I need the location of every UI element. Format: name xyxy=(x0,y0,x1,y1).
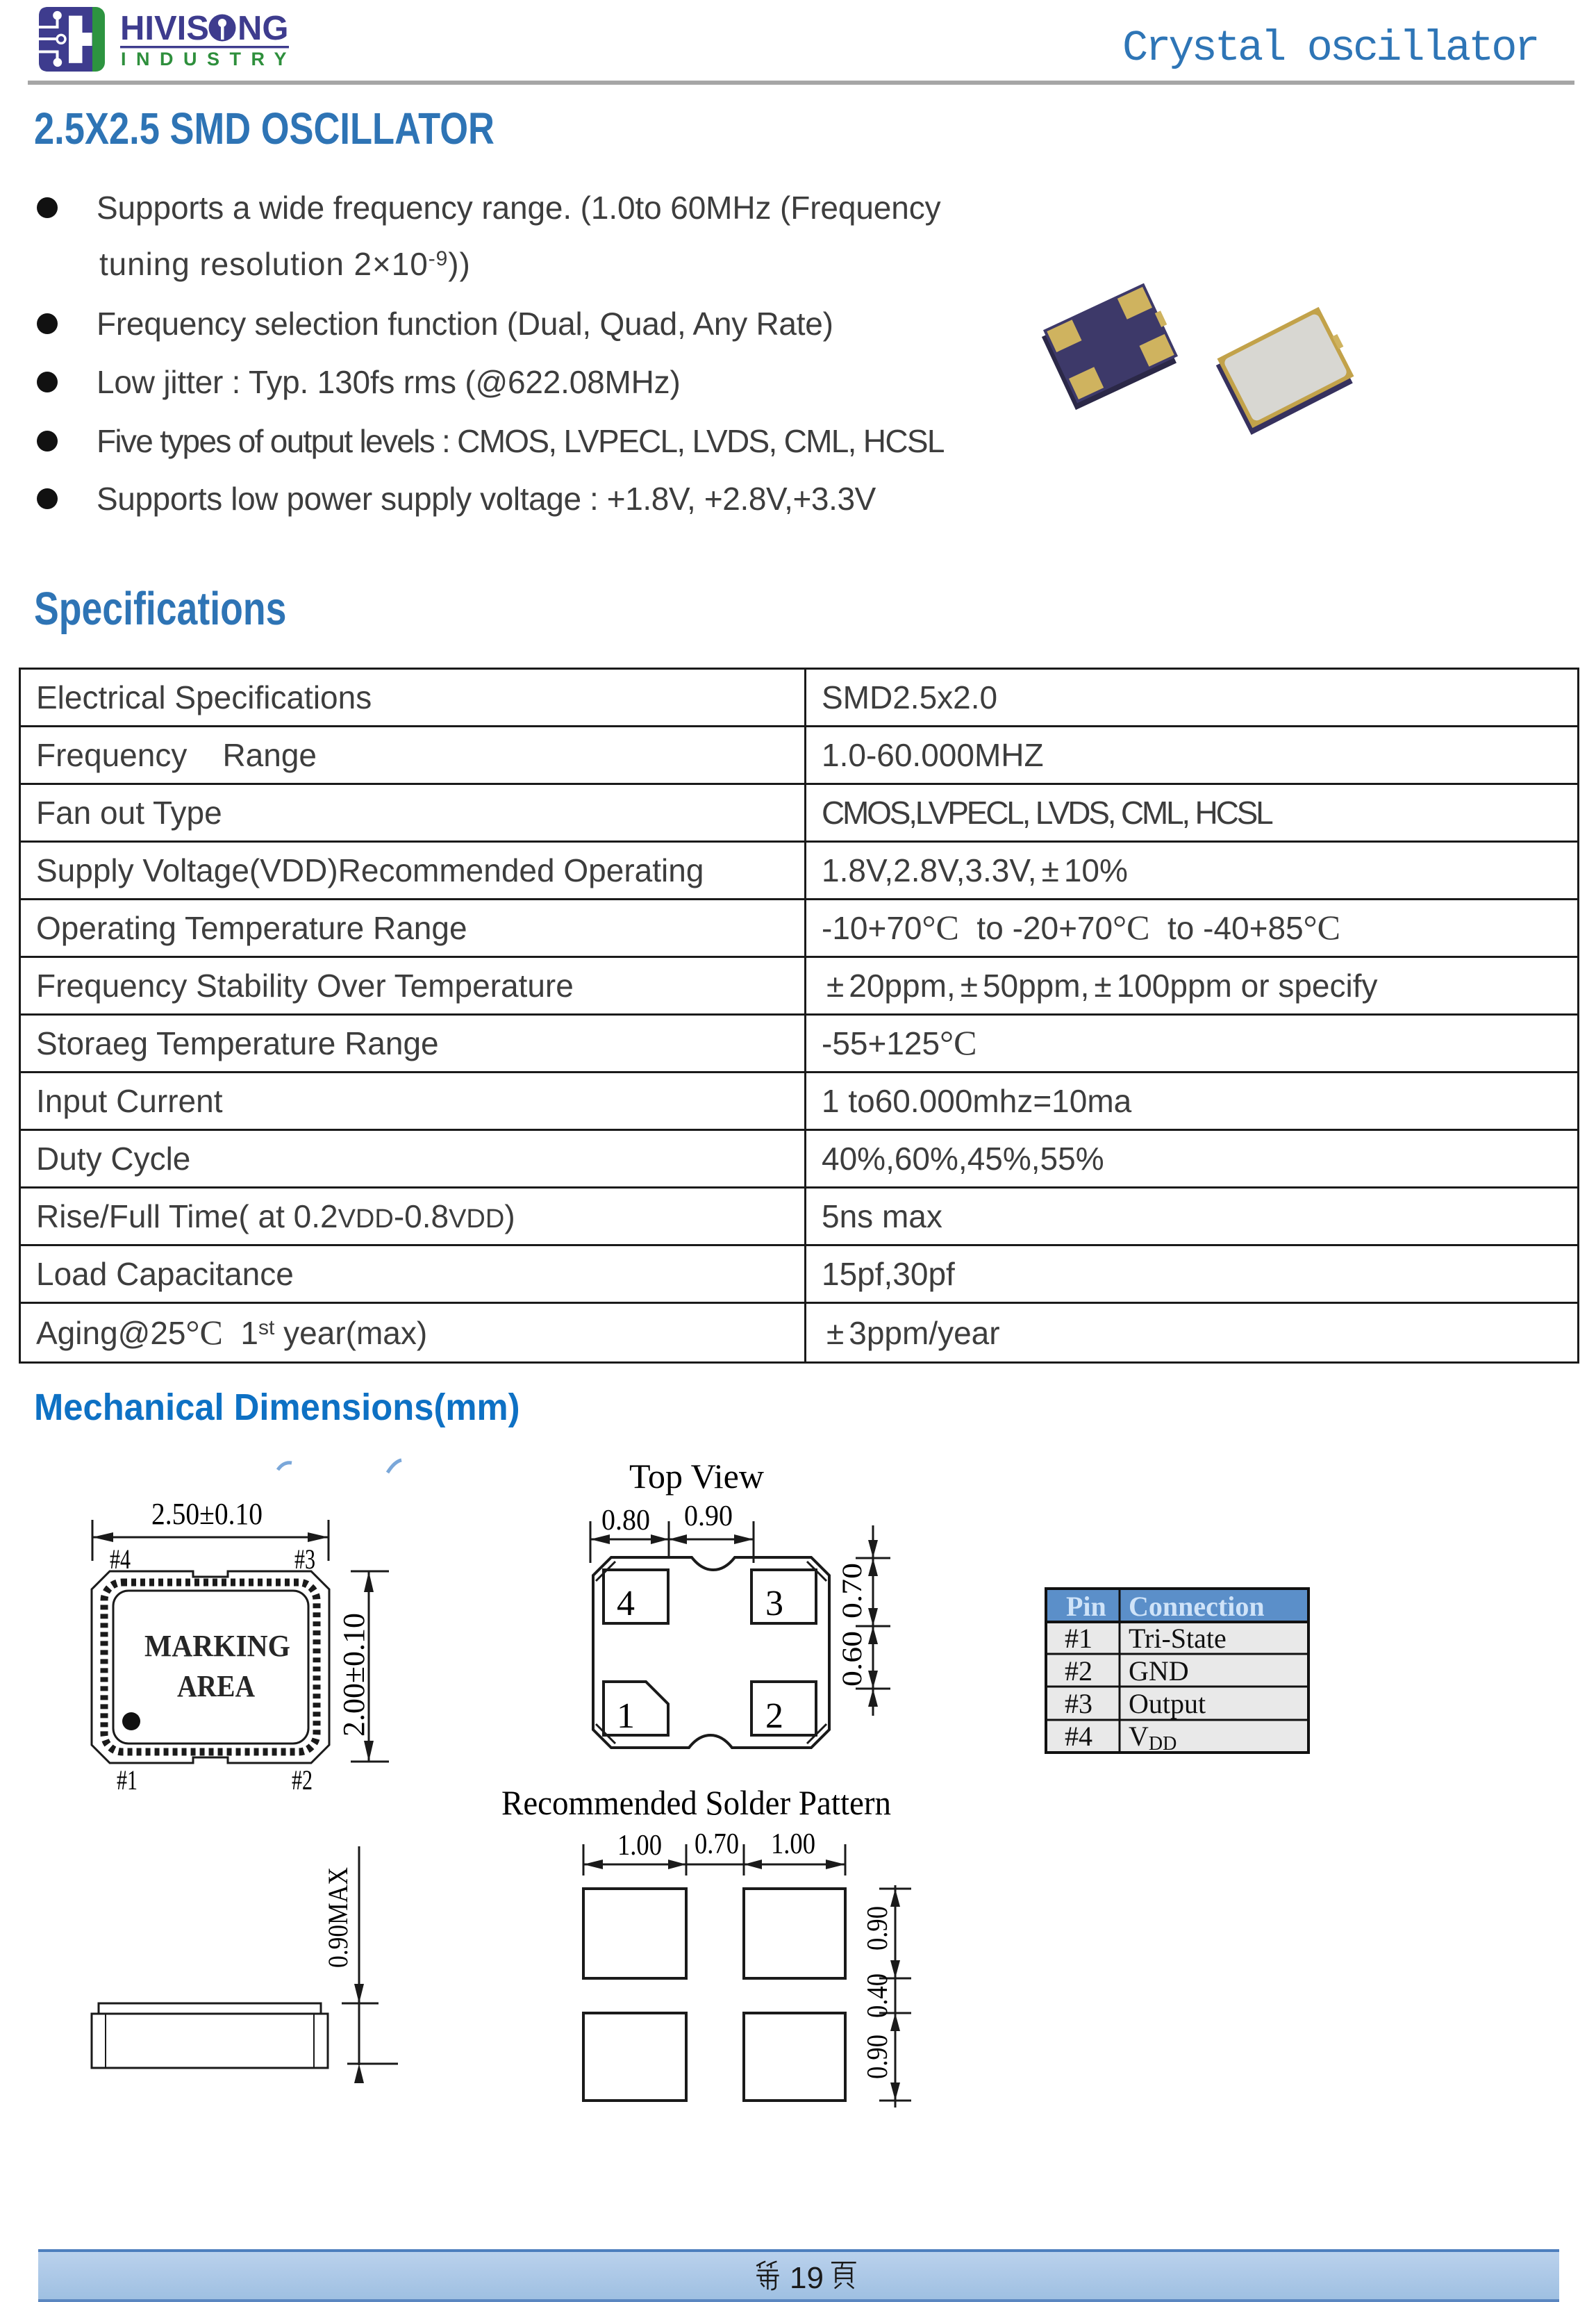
svg-text:GND: GND xyxy=(1129,1655,1189,1687)
svg-text:Pin: Pin xyxy=(1066,1591,1106,1622)
svg-text:#3: #3 xyxy=(294,1543,315,1575)
svg-text:0.80: 0.80 xyxy=(601,1505,650,1537)
svg-text:Connection: Connection xyxy=(1129,1591,1265,1622)
svg-text:Output: Output xyxy=(1129,1688,1206,1719)
svg-text:0.90: 0.90 xyxy=(862,2035,894,2079)
svg-text:NG: NG xyxy=(238,10,289,47)
svg-text:0.70: 0.70 xyxy=(695,1828,739,1860)
svg-text:#4: #4 xyxy=(110,1543,131,1575)
svg-text:0.60: 0.60 xyxy=(836,1631,867,1687)
svg-text:AREA: AREA xyxy=(177,1669,255,1703)
svg-text:1.00: 1.00 xyxy=(771,1828,815,1860)
svg-text:MARKING: MARKING xyxy=(144,1629,290,1663)
svg-text:Tri-State: Tri-State xyxy=(1129,1623,1227,1654)
svg-text:2.00±0.10: 2.00±0.10 xyxy=(337,1613,371,1737)
svg-text:1: 1 xyxy=(617,1696,635,1736)
svg-text:1.00: 1.00 xyxy=(617,1830,662,1862)
svg-text:HIVIS: HIVIS xyxy=(120,10,209,47)
svg-text:0.40: 0.40 xyxy=(862,1973,894,2018)
svg-text:0.90MAX: 0.90MAX xyxy=(322,1867,354,1968)
svg-text:19: 19 xyxy=(790,2261,824,2291)
svg-text:Recommended Solder Pattern: Recommended Solder Pattern xyxy=(501,1783,891,1822)
svg-text:0.90: 0.90 xyxy=(862,1906,894,1951)
svg-text:0.70: 0.70 xyxy=(836,1563,867,1618)
svg-text:#4: #4 xyxy=(1065,1721,1092,1752)
svg-text:2.50±0.10: 2.50±0.10 xyxy=(151,1497,263,1531)
svg-text:3: 3 xyxy=(765,1584,783,1623)
svg-text:#1: #1 xyxy=(1065,1623,1092,1654)
svg-text:2: 2 xyxy=(765,1696,783,1736)
svg-text:INDUSTRY: INDUSTRY xyxy=(121,49,297,69)
svg-text:4: 4 xyxy=(617,1584,635,1623)
svg-text:#1: #1 xyxy=(117,1764,138,1796)
svg-text:#2: #2 xyxy=(1065,1655,1092,1687)
svg-text:#3: #3 xyxy=(1065,1688,1092,1719)
svg-text:0.90: 0.90 xyxy=(684,1500,733,1532)
svg-text:#2: #2 xyxy=(292,1764,313,1796)
svg-text:Top View: Top View xyxy=(629,1457,764,1496)
